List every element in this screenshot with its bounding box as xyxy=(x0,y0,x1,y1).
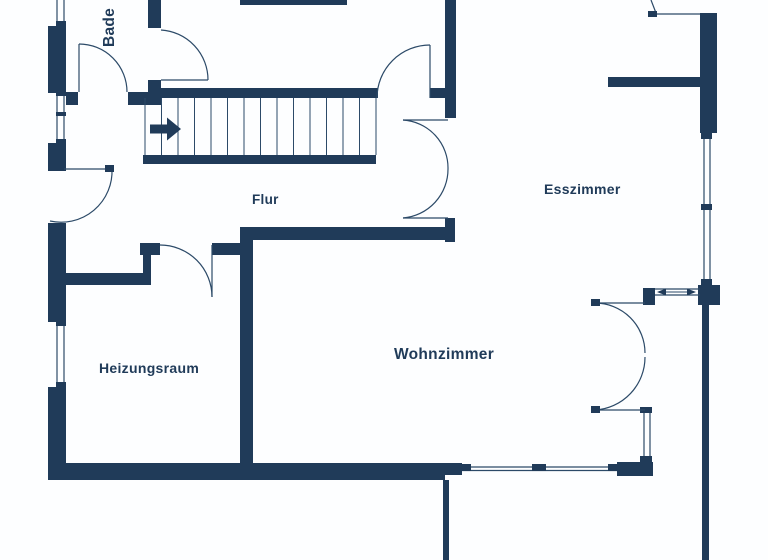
window-tick xyxy=(701,204,712,210)
door-tick xyxy=(648,11,657,17)
room-label-heizungsraum: Heizungsraum xyxy=(99,360,199,376)
wall-segment xyxy=(212,243,243,255)
wall-segment xyxy=(445,0,456,118)
wall-segment xyxy=(66,92,78,105)
window-tick xyxy=(640,456,652,462)
floor-plan: Bade Flur Esszimmer Wohnzimmer Heizungsr… xyxy=(0,0,768,560)
window-tick xyxy=(532,464,546,471)
window-tick xyxy=(56,382,66,387)
room-labels: Bade Flur Esszimmer Wohnzimmer Heizungsr… xyxy=(99,8,621,376)
wall-segment xyxy=(240,227,253,463)
window-tick xyxy=(56,112,66,116)
door-tick xyxy=(105,165,114,172)
window-tick xyxy=(461,464,471,471)
wall-segment xyxy=(48,223,66,322)
wall-segment xyxy=(48,143,66,171)
double-door-swing-arc xyxy=(595,303,645,353)
wall-segment xyxy=(161,88,378,98)
interior-walls xyxy=(63,0,703,463)
window-tick xyxy=(701,279,712,285)
wall-segment xyxy=(702,305,709,560)
wall-segment xyxy=(700,13,717,133)
door-tick xyxy=(591,299,600,306)
door-swing-arc xyxy=(50,169,112,222)
window-tick xyxy=(56,139,66,143)
staircase xyxy=(143,98,376,164)
room-label-flur: Flur xyxy=(252,192,279,207)
window-tick xyxy=(701,133,712,139)
window-tick xyxy=(56,21,66,26)
doors xyxy=(50,0,700,413)
double-door-swing-arc xyxy=(403,169,448,218)
door-swing-arc xyxy=(377,45,430,98)
room-label-wohnzimmer: Wohnzimmer xyxy=(394,346,494,363)
door-swing-arc xyxy=(79,44,127,92)
door-swing-arc xyxy=(160,245,212,297)
window-tick xyxy=(608,464,617,471)
wall-segment xyxy=(63,273,151,285)
wall-segment xyxy=(148,80,161,105)
stairs-direction-arrow-icon xyxy=(150,118,181,141)
window-tick xyxy=(56,321,66,326)
wall-segment xyxy=(430,88,447,98)
door-swing-arc xyxy=(161,30,208,80)
wall-segment xyxy=(148,0,161,28)
wall-segment xyxy=(48,26,66,93)
door-tick xyxy=(591,406,600,413)
wall-segment xyxy=(617,462,653,476)
double-door-swing-arc xyxy=(403,120,448,169)
wall-segment xyxy=(445,463,462,475)
wall-segment xyxy=(140,243,160,255)
floor-plan-canvas: Bade Flur Esszimmer Wohnzimmer Heizungsr… xyxy=(0,0,768,560)
room-label-badezimmer: Bade xyxy=(101,8,118,47)
wall-segment xyxy=(443,480,449,560)
double-door-swing-arc xyxy=(595,357,645,410)
wall-segment xyxy=(48,463,445,480)
room-label-esszimmer: Esszimmer xyxy=(544,181,621,197)
window-tick xyxy=(56,92,66,96)
wall-segment xyxy=(240,0,347,5)
wall-segment xyxy=(608,77,703,87)
stairs-bottom-rail xyxy=(143,155,376,164)
wall-segment xyxy=(698,285,720,305)
wall-segment xyxy=(245,227,455,240)
